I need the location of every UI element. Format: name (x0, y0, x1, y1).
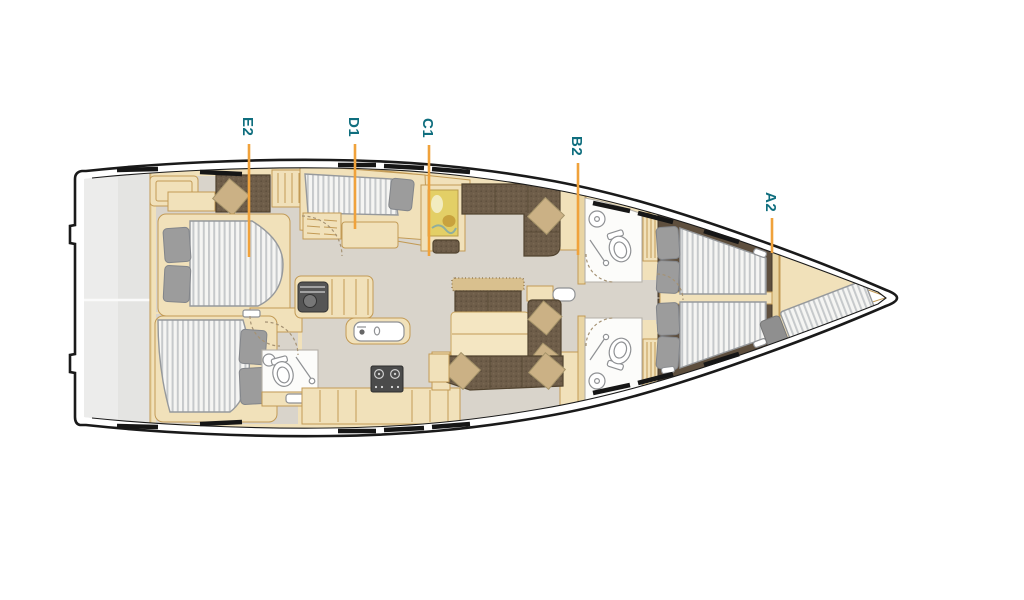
interior (60, 155, 940, 455)
pillow (163, 227, 191, 263)
pilot-mattress (305, 174, 398, 215)
cabin-door-leaf (243, 310, 260, 317)
side-table (429, 354, 449, 382)
pillow (656, 226, 680, 259)
cabin-label-E2: E2 (239, 117, 256, 136)
cabin-label-C1: C1 (419, 118, 436, 138)
yacht-layout-diagram: E2D1C1B2A2 (0, 0, 1024, 600)
deck-plan-svg: E2D1C1B2A2 (0, 0, 1024, 600)
aft-starboard-mattress (158, 320, 249, 412)
cabin-label-A2: A2 (762, 192, 779, 212)
engine-pulley (304, 295, 317, 308)
washbasin-icon (589, 211, 605, 227)
head-bulkhead-bottom (578, 316, 585, 410)
aft-port-cabin (150, 170, 304, 316)
pilot-berth-d1 (300, 165, 428, 248)
pillow (656, 336, 680, 369)
galley-counter (302, 388, 460, 424)
cabin-label-D1: D1 (345, 117, 362, 137)
pillow (163, 265, 191, 302)
ottoman (433, 240, 459, 253)
saloon-table (451, 312, 529, 358)
bench-backrest (452, 278, 524, 291)
stove-icon (371, 366, 403, 392)
galley-island (346, 318, 410, 344)
aft-port-mattress (190, 221, 283, 306)
washbasin-icon (589, 373, 605, 389)
locker-slats (643, 213, 658, 261)
side-cabinet (527, 286, 553, 301)
wardrobe-slats (272, 170, 304, 207)
chart-table-screen (428, 190, 458, 236)
pillow (656, 302, 680, 335)
cabin-sideboard (168, 192, 215, 211)
cabin-label-B2: B2 (568, 136, 585, 156)
swim-platform (74, 162, 152, 438)
side-basin-icon (553, 288, 575, 301)
companionway (295, 276, 373, 318)
nav-desk (342, 222, 398, 248)
pillow (388, 178, 414, 211)
corridor-floor (584, 280, 660, 320)
handle (661, 366, 675, 374)
